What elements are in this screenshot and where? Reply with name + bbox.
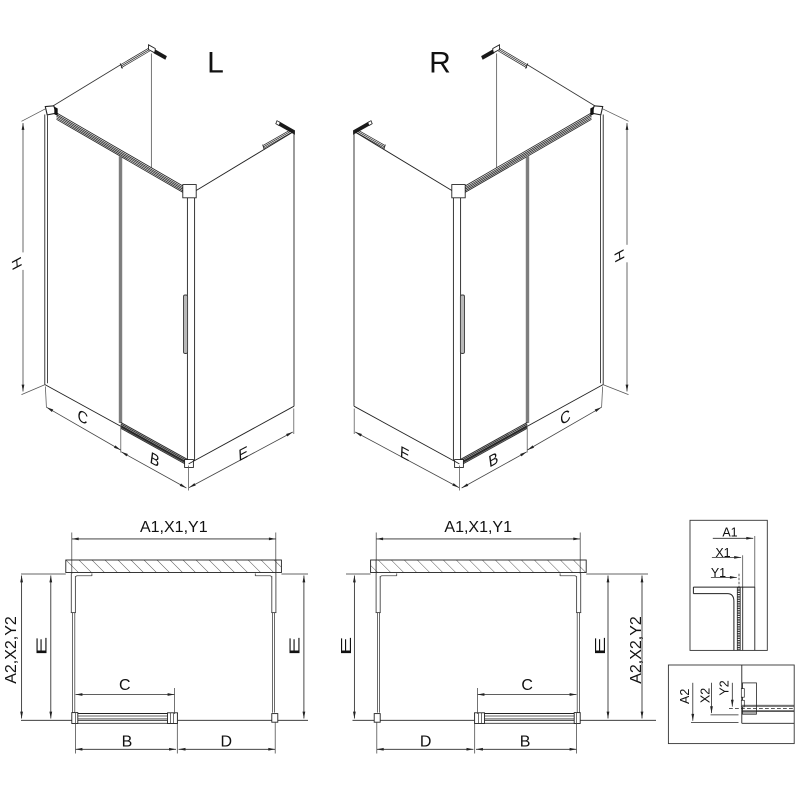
svg-text:X1: X1 bbox=[715, 546, 730, 560]
svg-text:Y2: Y2 bbox=[718, 680, 732, 695]
svg-text:A2,X2,Y2: A2,X2,Y2 bbox=[628, 616, 645, 684]
svg-text:C: C bbox=[521, 677, 533, 694]
svg-text:C: C bbox=[119, 677, 131, 694]
svg-text:A1,X1,Y1: A1,X1,Y1 bbox=[140, 519, 208, 536]
svg-text:A2: A2 bbox=[678, 689, 692, 704]
svg-text:Y1: Y1 bbox=[711, 566, 726, 580]
svg-text:B: B bbox=[520, 733, 531, 750]
svg-text:B: B bbox=[122, 733, 133, 750]
svg-text:R: R bbox=[429, 47, 451, 80]
svg-text:A1: A1 bbox=[722, 525, 737, 539]
svg-text:A2,X2,Y2: A2,X2,Y2 bbox=[3, 616, 20, 684]
svg-text:L: L bbox=[207, 47, 224, 80]
svg-text:E: E bbox=[33, 637, 50, 656]
svg-text:E: E bbox=[338, 637, 355, 656]
svg-text:E: E bbox=[592, 637, 609, 656]
svg-text:D: D bbox=[420, 733, 432, 750]
svg-text:D: D bbox=[221, 733, 233, 750]
svg-text:X2: X2 bbox=[698, 688, 712, 703]
svg-text:A1,X1,Y1: A1,X1,Y1 bbox=[444, 519, 512, 536]
svg-text:E: E bbox=[286, 637, 303, 656]
